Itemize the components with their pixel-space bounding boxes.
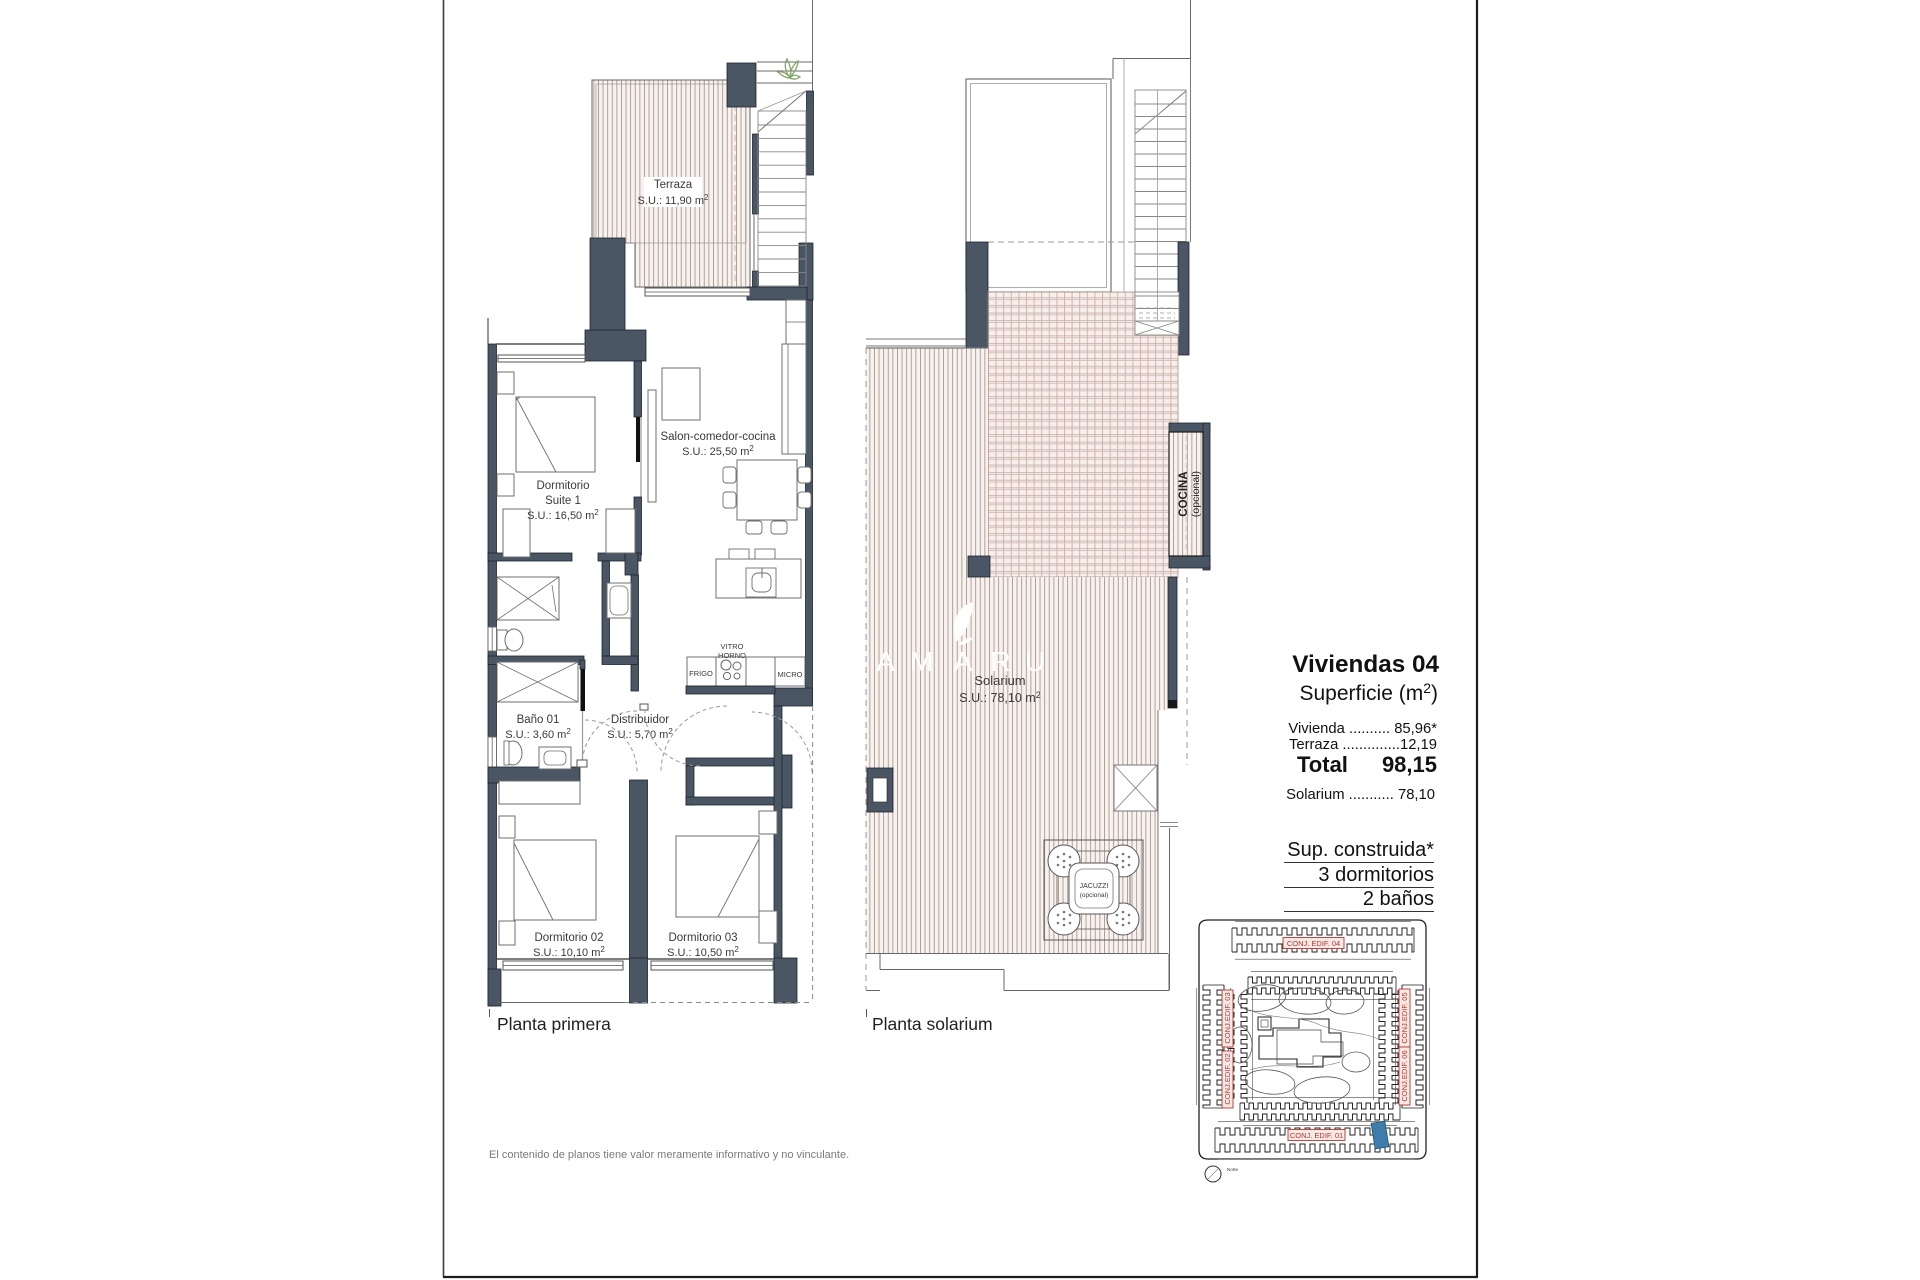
svg-text:CONJ.EDIF. 06: CONJ.EDIF. 06 xyxy=(1400,1050,1409,1101)
svg-text:(opcional): (opcional) xyxy=(1190,471,1202,517)
svg-text:MICRO: MICRO xyxy=(778,670,803,679)
svg-text:CONJ.EDIF. 03: CONJ.EDIF. 03 xyxy=(1223,992,1232,1043)
svg-text:Sup. construida*: Sup. construida* xyxy=(1287,839,1434,861)
svg-text:(opcional): (opcional) xyxy=(1080,892,1109,899)
svg-text:Planta primera: Planta primera xyxy=(497,1014,611,1034)
svg-text:S.U.: 10,10 m2: S.U.: 10,10 m2 xyxy=(533,945,605,959)
svg-text:Dormitorio 02: Dormitorio 02 xyxy=(534,932,603,944)
svg-text:HORNO: HORNO xyxy=(718,651,746,660)
svg-text:Dormitorio: Dormitorio xyxy=(536,480,589,492)
svg-text:S.U.: 78,10 m2: S.U.: 78,10 m2 xyxy=(959,690,1040,705)
svg-text:S.U.: 10,50 m2: S.U.: 10,50 m2 xyxy=(667,945,739,959)
svg-text:CONJ.EDIF. 02: CONJ.EDIF. 02 xyxy=(1223,1053,1232,1104)
svg-text:98,15: 98,15 xyxy=(1382,752,1437,777)
svg-text:S.U.: 25,50 m2: S.U.: 25,50 m2 xyxy=(682,444,754,458)
svg-text:Superficie (m2): Superficie (m2) xyxy=(1300,680,1439,705)
svg-text:Dormitorio 03: Dormitorio 03 xyxy=(668,932,737,944)
svg-text:Terraza ..............12,19: Terraza ..............12,19 xyxy=(1289,737,1437,753)
svg-text:Solarium ........... 78,10: Solarium ........... 78,10 xyxy=(1286,787,1435,803)
svg-text:COCINA: COCINA xyxy=(1178,471,1190,516)
svg-text:U: U xyxy=(1025,646,1045,677)
svg-text:Total: Total xyxy=(1297,752,1348,777)
svg-text:El contenido de planos tiene v: El contenido de planos tiene valor meram… xyxy=(489,1149,849,1161)
svg-text:Salon-comedor-cocina: Salon-comedor-cocina xyxy=(660,431,776,443)
svg-text:R: R xyxy=(990,646,1010,677)
svg-text:S.U.: 3,60 m2: S.U.: 3,60 m2 xyxy=(505,727,571,741)
svg-text:A: A xyxy=(876,646,895,677)
svg-text:2 baños: 2 baños xyxy=(1363,888,1434,910)
svg-text:M: M xyxy=(910,646,933,677)
svg-text:S.U.: 5,70 m2: S.U.: 5,70 m2 xyxy=(607,727,673,741)
svg-text:Vivienda .......... 85,96*: Vivienda .......... 85,96* xyxy=(1288,721,1437,737)
svg-text:CONJ. EDIF. 04: CONJ. EDIF. 04 xyxy=(1287,939,1340,948)
svg-text:S.U.: 16,50 m2: S.U.: 16,50 m2 xyxy=(527,508,599,522)
svg-text:Distribuidor: Distribuidor xyxy=(611,714,669,726)
svg-text:CONJ. EDIF. 01: CONJ. EDIF. 01 xyxy=(1290,1131,1343,1140)
svg-text:FRIGO: FRIGO xyxy=(689,669,713,678)
svg-text:S.U.: 11,90 m2: S.U.: 11,90 m2 xyxy=(638,193,709,207)
svg-text:A: A xyxy=(954,646,973,677)
svg-text:Baño 01: Baño 01 xyxy=(517,714,560,726)
svg-text:JACUZZI: JACUZZI xyxy=(1080,883,1109,890)
svg-text:VITRO: VITRO xyxy=(721,642,744,651)
svg-text:CONJ.EDIF. 05: CONJ.EDIF. 05 xyxy=(1400,992,1409,1043)
svg-text:3 dormitorios: 3 dormitorios xyxy=(1318,864,1434,886)
svg-text:Viviendas 04: Viviendas 04 xyxy=(1292,651,1439,678)
svg-text:Norte: Norte xyxy=(1227,1167,1239,1172)
svg-text:Planta solarium: Planta solarium xyxy=(872,1014,993,1034)
svg-text:Suite 1: Suite 1 xyxy=(545,495,581,507)
svg-text:Terraza: Terraza xyxy=(654,179,693,191)
